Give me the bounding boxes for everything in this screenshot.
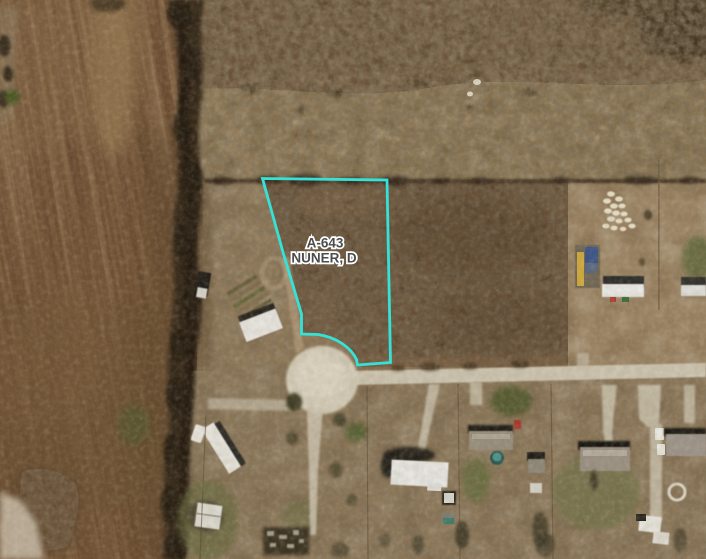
svg-text:A-643: A-643 (307, 236, 344, 251)
svg-text:NUNER, D: NUNER, D (291, 251, 357, 266)
